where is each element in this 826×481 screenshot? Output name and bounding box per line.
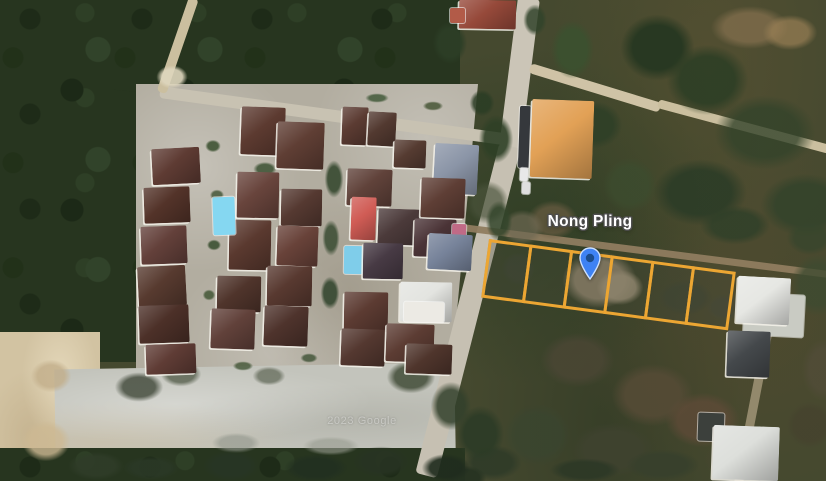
- house-roof: [143, 186, 190, 224]
- house-roof: [217, 276, 262, 313]
- vegetation-blob: [420, 100, 446, 112]
- house-roof: [363, 243, 404, 280]
- orange-roof-building: [530, 99, 595, 179]
- map-watermark: 2023 Google: [327, 415, 397, 427]
- vegetation-blob: [415, 450, 477, 481]
- vegetation-blob: [203, 138, 223, 154]
- house-roof: [344, 292, 389, 333]
- vegetation-blob: [298, 352, 320, 364]
- vegetation-blob: [201, 288, 217, 302]
- house-roof: [459, 0, 516, 29]
- vegetation-blob: [755, 10, 825, 55]
- vegetation-blob: [195, 446, 267, 481]
- house-roof: [267, 266, 313, 307]
- vegetation-blob: [205, 238, 223, 252]
- house-roof: [420, 177, 465, 219]
- vegetation-blob: [320, 215, 342, 261]
- vegetation-blob: [322, 155, 346, 203]
- map-pin[interactable]: [579, 247, 601, 280]
- vegetation-blob: [482, 195, 516, 247]
- house-roof: [151, 147, 201, 185]
- house-roof: [137, 265, 187, 307]
- white-roof-house: [404, 302, 444, 323]
- land-plot-cell[interactable]: [684, 266, 735, 330]
- white-roof-building: [736, 276, 791, 326]
- house-roof: [405, 343, 452, 375]
- vegetation-blob: [152, 62, 192, 92]
- parked-car: [520, 168, 528, 181]
- house-roof: [145, 343, 196, 375]
- swimming-pool: [212, 197, 235, 236]
- house-roof: [210, 308, 255, 350]
- blue-gray-roof-house: [427, 233, 473, 271]
- house-annex: [450, 8, 465, 23]
- parked-car: [522, 182, 530, 194]
- house-roof: [341, 107, 368, 146]
- house-roof: [237, 172, 280, 219]
- vegetation-blob: [425, 375, 477, 437]
- vegetation-blob: [545, 12, 600, 87]
- house-roof: [263, 305, 308, 347]
- vegetation-blob: [362, 92, 392, 104]
- map-canvas[interactable]: Nong Pling2023 Google: [0, 0, 826, 481]
- vegetation-blob: [318, 272, 342, 314]
- house-roof: [276, 121, 325, 170]
- house-roof: [140, 225, 187, 265]
- vegetation-blob: [540, 455, 630, 481]
- house-roof: [138, 304, 189, 344]
- house-roof: [394, 139, 427, 168]
- parked-cars: [518, 106, 531, 168]
- vegetation-blob: [520, 0, 550, 40]
- place-label: Nong Pling: [548, 213, 633, 231]
- red-roof-house: [350, 197, 376, 241]
- vegetation-blob: [615, 445, 710, 481]
- white-roof-building: [712, 425, 780, 481]
- vegetation-blob: [25, 355, 77, 397]
- vegetation-blob: [115, 453, 187, 481]
- map-pin-dot: [586, 254, 594, 262]
- swimming-pool: [344, 246, 363, 274]
- house-roof: [281, 189, 323, 227]
- house-roof: [340, 328, 385, 367]
- vegetation-blob: [345, 442, 417, 481]
- dark-roof-building: [726, 330, 771, 377]
- house-roof: [276, 225, 318, 266]
- vegetation-blob: [690, 200, 780, 250]
- vegetation-blob: [466, 86, 498, 120]
- vegetation-blob: [230, 360, 256, 372]
- house-roof: [367, 111, 397, 146]
- map-pin-body: [580, 248, 600, 279]
